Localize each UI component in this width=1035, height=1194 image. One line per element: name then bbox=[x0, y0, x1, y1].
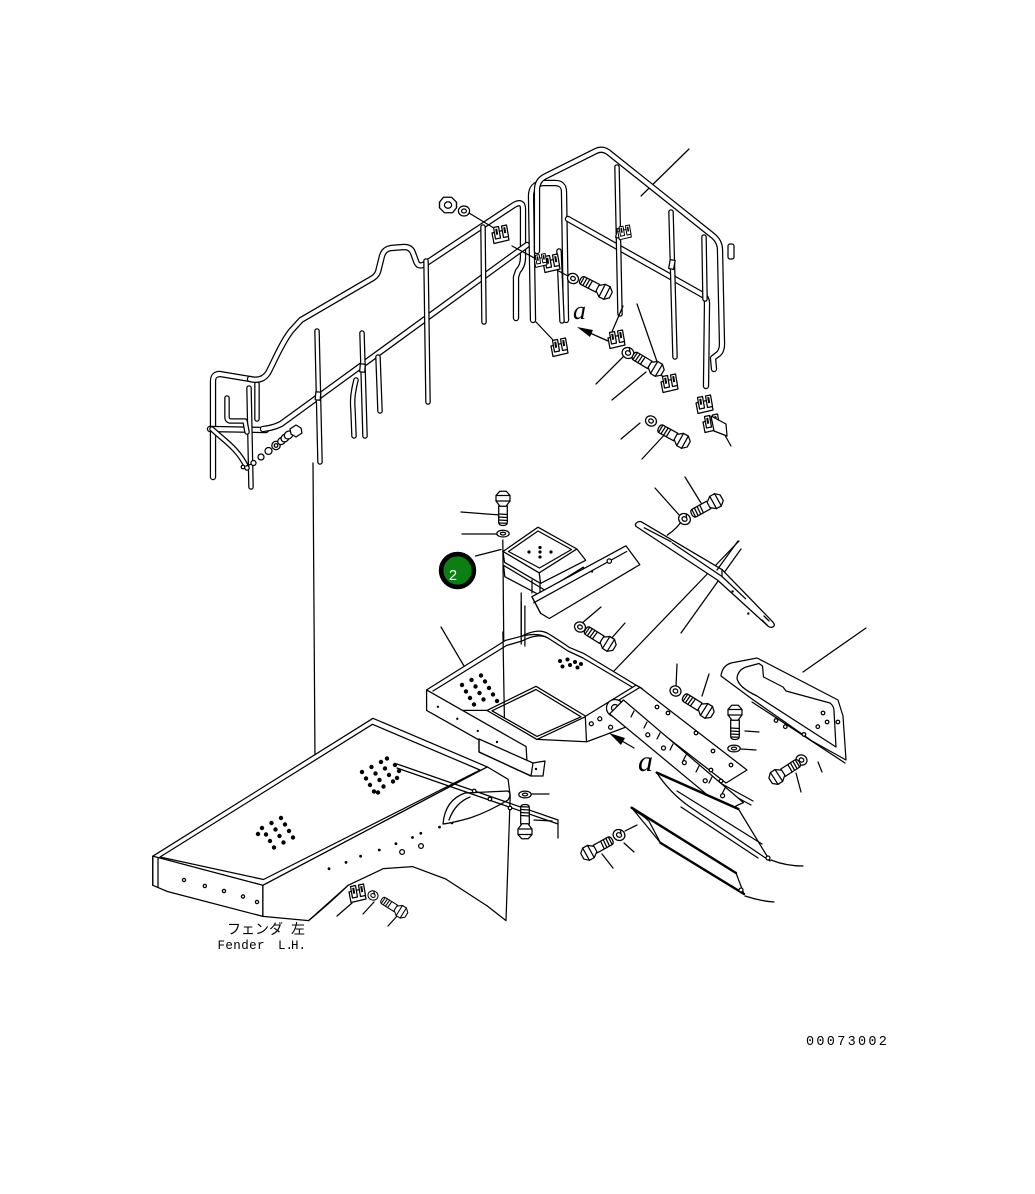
svg-text:左: 左 bbox=[291, 921, 305, 937]
svg-text:a: a bbox=[638, 745, 653, 778]
svg-text:H.: H. bbox=[291, 939, 306, 953]
svg-text:00073002: 00073002 bbox=[806, 1035, 889, 1050]
svg-text:Fender: Fender bbox=[218, 939, 265, 953]
svg-text:a: a bbox=[573, 296, 586, 325]
svg-text:フェンダ: フェンダ bbox=[227, 921, 283, 937]
svg-text:2: 2 bbox=[449, 568, 457, 584]
